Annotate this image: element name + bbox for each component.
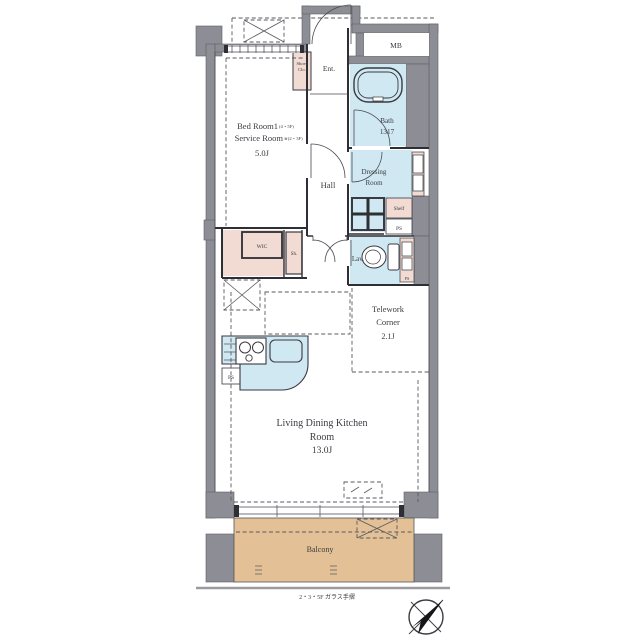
bedroom-name-label: Bed Room1 [237,121,278,131]
bath-size-label: 1317 [380,128,395,136]
toilet-icon [362,244,399,270]
meter-box-label: MB [390,41,402,50]
balcony-label: Balcony [307,545,334,554]
wall-under-mb [348,56,429,64]
entrance-label: Ent. [323,64,335,73]
floorplan-canvas: Bed Room1 (4・5F) Service Room ※(2・3F) 5.… [0,0,640,640]
floor-plan-drawing: Bed Room1 (4・5F) Service Room ※(2・3F) 5.… [0,0,640,640]
pillar-bottom-left [206,492,234,518]
bedroom-door [311,144,345,178]
bedroom-top-window [224,45,304,53]
air-conditioner-dashed [344,482,382,498]
kitchen-upper-cabinet-dashed [265,292,350,334]
shoes-closet-label-2: Clo. [298,67,306,72]
porch-jamb-right [352,6,360,26]
telework-size-label: 2.1J [381,332,394,341]
shaft-right-of-shelf [412,196,429,236]
bath-label: Bath [380,117,394,125]
wic-label: WIC [257,244,268,250]
wall-left [206,44,215,518]
north-compass-icon [409,600,443,634]
shelf-small-label: Sh. [291,252,298,257]
pillar-mid-left [204,220,215,240]
hall-label: Hall [321,180,336,190]
ldk-label-2: Room [310,432,335,443]
sink-icon [270,340,302,362]
telework-dashed-boundary [352,288,429,372]
dressing-label-2: Room [365,179,383,187]
pillar-bottom-right [404,492,438,518]
lavatory-label: Lav. [352,255,364,263]
bedroom-alt-label: Service Room [235,133,284,143]
service-space-top [244,20,284,42]
shaft-right-of-lav [414,236,429,285]
dressing-label-1: Dressing [362,168,387,176]
bedroom-alt-note: ※(2・3F) [284,136,303,141]
wic-floor [222,230,284,276]
shaft-right-of-bath [406,64,429,148]
labels: Bed Room1 (4・5F) Service Room ※(2・3F) 5.… [228,41,410,554]
mb-jamb [356,33,364,58]
bedroom-name-note: (4・5F) [279,124,294,129]
ldk-label-1: Living Dining Kitchen [276,418,367,429]
balcony-wall-right [414,534,442,582]
bedroom-size-label: 5.0J [255,148,270,158]
bathtub-icon [354,68,402,102]
washing-machine-pan-icon [352,198,384,230]
ldk-size-label: 13.0J [312,446,333,456]
stove-icon [236,338,266,364]
telework-label-2: Corner [376,317,400,327]
telework-label-1: Telework [372,304,405,314]
ps-lav-label: PS [405,276,410,281]
shoes-closet-label-1: Shoes [297,61,308,66]
ps-upper-label: PS [396,226,402,232]
ldk-folding-door [313,236,347,262]
refrigerator-space [224,280,260,310]
ldk-bottom-window [234,505,404,517]
wall-top-right [352,24,438,33]
shelf-label: Shelf [394,207,405,212]
wall-right [429,24,438,518]
ps-kitchen-label: PS [228,375,234,381]
railing-caption: 2・3・5F ガラス手摺 [299,593,355,601]
footer: 2・3・5F ガラス手摺 [196,588,450,601]
balcony-wall-left [206,534,234,582]
